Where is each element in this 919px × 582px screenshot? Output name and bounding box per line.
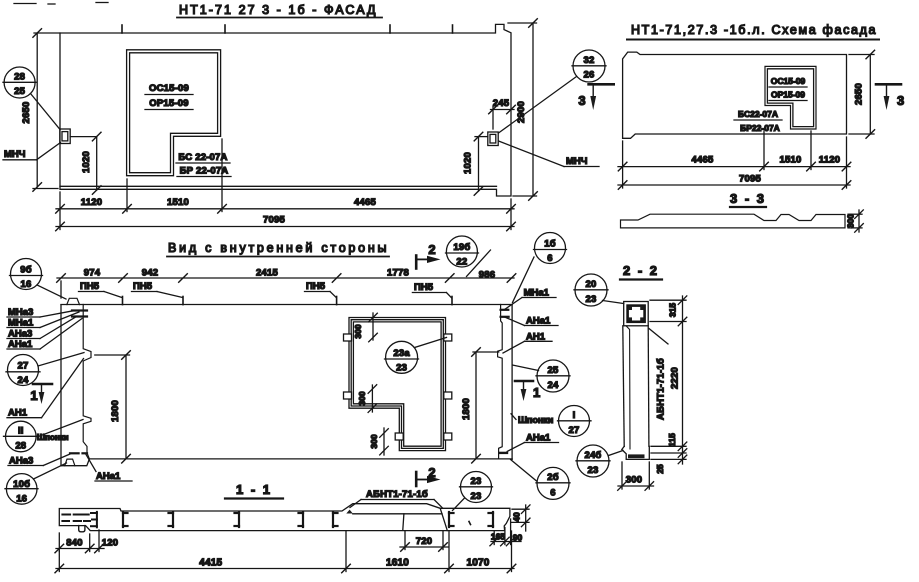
svg-text:ОС15-09: ОС15-09 xyxy=(149,83,189,94)
svg-text:942: 942 xyxy=(142,268,158,279)
svg-text:2650: 2650 xyxy=(21,102,32,124)
svg-text:90: 90 xyxy=(513,533,523,543)
svg-text:7095: 7095 xyxy=(739,173,761,184)
svg-text:1020: 1020 xyxy=(463,152,474,174)
svg-text:986: 986 xyxy=(479,270,495,281)
svg-text:2650: 2650 xyxy=(854,83,865,105)
svg-text:1610: 1610 xyxy=(386,558,409,569)
svg-text:40: 40 xyxy=(512,512,522,522)
svg-text:300: 300 xyxy=(357,391,367,405)
svg-text:2415: 2415 xyxy=(256,268,278,279)
svg-text:23: 23 xyxy=(471,491,482,502)
svg-text:1800: 1800 xyxy=(461,398,472,420)
svg-text:1800: 1800 xyxy=(110,400,121,422)
svg-text:ПН5: ПН5 xyxy=(133,281,153,292)
svg-text:28: 28 xyxy=(14,72,25,83)
svg-text:25: 25 xyxy=(548,365,559,376)
svg-text:II: II xyxy=(18,426,24,437)
svg-text:3: 3 xyxy=(897,93,904,108)
svg-text:27: 27 xyxy=(18,361,29,372)
svg-text:10б: 10б xyxy=(13,479,30,490)
svg-text:ОР15-09: ОР15-09 xyxy=(771,90,805,100)
svg-text:315: 315 xyxy=(668,303,678,317)
svg-text:НТ1-71 27 3 - 1б - ФАСАД: НТ1-71 27 3 - 1б - ФАСАД xyxy=(179,3,377,17)
svg-text:1510: 1510 xyxy=(167,197,189,208)
svg-text:2 - 2: 2 - 2 xyxy=(623,263,659,278)
svg-text:4415: 4415 xyxy=(199,558,222,569)
svg-text:245: 245 xyxy=(493,98,510,109)
svg-text:300: 300 xyxy=(369,434,379,448)
svg-text:22: 22 xyxy=(456,257,467,268)
svg-text:20: 20 xyxy=(586,279,597,290)
svg-text:32: 32 xyxy=(584,55,595,66)
svg-text:4465: 4465 xyxy=(354,197,376,208)
svg-text:БС22-07А: БС22-07А xyxy=(738,109,778,119)
svg-text:1б: 1б xyxy=(544,239,556,250)
svg-text:1 - 1: 1 - 1 xyxy=(236,482,272,497)
svg-text:974: 974 xyxy=(84,268,101,279)
svg-text:25: 25 xyxy=(14,86,25,97)
svg-text:24б: 24б xyxy=(584,450,601,461)
svg-text:БР22-07А: БР22-07А xyxy=(740,123,780,133)
svg-text:1070: 1070 xyxy=(466,558,489,569)
svg-text:АБНТ1-71-1б: АБНТ1-71-1б xyxy=(366,489,428,500)
svg-text:19б: 19б xyxy=(453,242,470,253)
svg-text:1: 1 xyxy=(533,385,540,400)
svg-text:БР 22-07А: БР 22-07А xyxy=(180,166,229,177)
svg-text:24: 24 xyxy=(18,375,29,386)
svg-text:23: 23 xyxy=(586,294,597,305)
svg-text:Шпонки: Шпонки xyxy=(37,433,69,442)
svg-text:26: 26 xyxy=(584,70,595,81)
svg-text:6: 6 xyxy=(550,488,555,499)
svg-text:120: 120 xyxy=(102,538,118,549)
svg-text:1020: 1020 xyxy=(81,151,92,173)
svg-text:300: 300 xyxy=(353,324,363,338)
svg-text:Вид с внутренней стороны: Вид с внутренней стороны xyxy=(168,241,388,255)
svg-text:ПН5: ПН5 xyxy=(306,281,326,292)
svg-text:ПН5: ПН5 xyxy=(80,281,100,292)
svg-text:1778: 1778 xyxy=(387,268,409,279)
svg-text:16: 16 xyxy=(16,494,27,505)
svg-text:БС 22-07А: БС 22-07А xyxy=(178,152,227,163)
svg-text:ОС15-09: ОС15-09 xyxy=(771,76,806,86)
svg-text:МНЧ: МНЧ xyxy=(4,149,26,160)
svg-text:I: I xyxy=(573,410,576,421)
svg-text:2: 2 xyxy=(428,242,435,257)
svg-text:2б: 2б xyxy=(547,472,559,483)
svg-text:25: 25 xyxy=(655,464,665,474)
svg-text:2220: 2220 xyxy=(670,367,681,389)
svg-text:АНа1: АНа1 xyxy=(96,471,121,482)
svg-text:115: 115 xyxy=(667,433,677,447)
svg-text:НТ1-71,27.3 -1б.л. Схема фасад: НТ1-71,27.3 -1б.л. Схема фасада xyxy=(631,23,877,37)
svg-text:840: 840 xyxy=(66,538,82,549)
svg-text:7095: 7095 xyxy=(263,215,285,226)
svg-text:27: 27 xyxy=(569,425,580,436)
svg-text:23: 23 xyxy=(471,476,482,487)
svg-text:24: 24 xyxy=(548,380,559,391)
svg-text:16: 16 xyxy=(21,279,32,290)
svg-text:1120: 1120 xyxy=(819,155,840,166)
svg-text:3 - 3: 3 - 3 xyxy=(730,191,766,206)
svg-text:ОР15-09: ОР15-09 xyxy=(149,98,188,109)
svg-text:23а: 23а xyxy=(393,348,410,359)
svg-text:300: 300 xyxy=(626,475,642,486)
svg-text:Шпонки: Шпонки xyxy=(518,415,553,425)
svg-text:4465: 4465 xyxy=(692,155,714,166)
svg-text:3: 3 xyxy=(578,93,585,108)
svg-text:720: 720 xyxy=(416,536,432,547)
svg-text:23: 23 xyxy=(396,363,407,374)
svg-text:ПН5: ПН5 xyxy=(414,282,434,293)
svg-text:9б: 9б xyxy=(20,265,32,276)
svg-text:165: 165 xyxy=(491,531,505,541)
svg-text:1120: 1120 xyxy=(81,197,102,208)
svg-text:МНЧ: МНЧ xyxy=(566,156,588,167)
svg-text:23: 23 xyxy=(588,465,599,476)
svg-text:АН1: АН1 xyxy=(8,408,28,419)
svg-text:1: 1 xyxy=(30,388,37,403)
svg-text:28: 28 xyxy=(15,441,26,452)
svg-text:300: 300 xyxy=(846,214,856,228)
svg-text:6: 6 xyxy=(547,253,552,264)
svg-text:АБНТ1-71-1б: АБНТ1-71-1б xyxy=(656,358,667,420)
svg-text:1510: 1510 xyxy=(780,155,802,166)
